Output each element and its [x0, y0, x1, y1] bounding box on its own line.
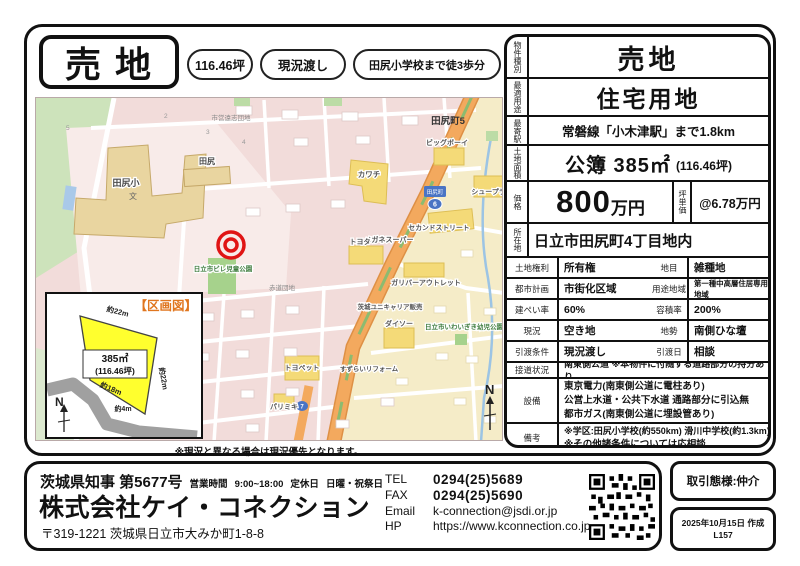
badge-asis: 現況渡し	[260, 49, 346, 80]
second-street-label: セカンドストリート	[408, 224, 469, 232]
table-row: 設備 東京電力(南東側公道に電柱あり) 公営上水道・公共下水道 通路部分に引込無…	[507, 377, 768, 422]
shiei-danchi-label: 市営遠志団地	[212, 113, 252, 122]
town-sign-label: 田尻町	[427, 189, 444, 196]
lot-diagram-title: 【区画図】	[134, 298, 197, 313]
location-value: 日立市田尻町4丁目地内	[529, 224, 768, 256]
lot-diagram-inset: 【区画図】 385㎡ (116.46坪) 約22m 約22m 約18m 約4m …	[45, 292, 203, 439]
lot-dim-top: 約22m	[106, 304, 131, 319]
megane-super-label: メガネスーパー	[365, 235, 414, 244]
table-row: 土地権利 所有権 地目 雑種地	[507, 256, 768, 277]
created-date-box: 2025年10月15日 作成 L157	[670, 507, 776, 551]
badge-school-distance: 田尻小学校まで徒3歩分	[353, 49, 501, 80]
tel-value: 0294(25)5689	[433, 472, 590, 487]
block-number-3: 3	[206, 129, 210, 136]
transaction-type: 取引態様:仲介	[687, 473, 760, 489]
land-area-value: 公簿 385㎡ (116.46坪)	[529, 146, 768, 180]
map-green-patch-1	[234, 98, 250, 106]
kawachi-label: カワチ	[358, 170, 381, 179]
contact-block: TEL 0294(25)5689 FAX 0294(25)5690 Email …	[385, 472, 590, 533]
map-green-patch-2	[324, 98, 342, 106]
row-label: 土地権利	[507, 258, 559, 277]
price-value: 800 万円	[529, 182, 672, 222]
row-label: 地目	[651, 258, 689, 277]
row-label: 建ぺい率	[507, 300, 559, 319]
block-number-4: 4	[242, 139, 246, 146]
tajiri5-district-label: 田尻町5	[431, 116, 466, 127]
city-planning-value: 市街化区域	[559, 279, 651, 298]
remarks-value: ※学区:田尻小学校(約550km) 滑川中学校(約1.3km) ※その他諸条件に…	[559, 424, 768, 448]
table-row: 建ぺい率 60% 容積率 200%	[507, 298, 768, 319]
table-row: 所在地 日立市田尻町4丁目地内	[507, 222, 768, 256]
row-label: 引渡日	[651, 342, 689, 361]
utilities-value: 東京電力(南東側公道に電柱あり) 公営上水道・公共下水道 通路部分に引込無 都市…	[559, 379, 768, 422]
block-number-2: 2	[164, 113, 168, 120]
company-info-panel: 茨城県知事 第5677号 営業時間 9:00~18:00 定休日 日曜・祝祭日 …	[24, 461, 662, 551]
table-row: 現況 空き地 地勢 南側ひな壇	[507, 319, 768, 340]
lot-area-tsubo: (116.46坪)	[95, 366, 135, 376]
row-label: 都市計画	[507, 279, 559, 298]
zoning-value: 第一種中高層住居専用地域	[689, 279, 768, 298]
document-number: L157	[713, 529, 732, 541]
block-number-5: 5	[66, 125, 70, 132]
row-label: 最適用途	[513, 81, 521, 113]
row-label: 容積率	[651, 300, 689, 319]
email-label: Email	[385, 504, 429, 518]
hp-label: HP	[385, 519, 429, 533]
school-mark-icon: 文	[129, 191, 137, 201]
map-north-label: N	[485, 382, 494, 397]
sale-title: 売 地	[65, 36, 153, 88]
map-disclaimer-note: ※現況と異なる場合は現況優先となります。	[35, 444, 503, 458]
row-label: 現況	[507, 321, 559, 340]
map-infant-park	[455, 334, 467, 345]
tsubo-price-value: @6.78万円	[692, 182, 768, 222]
property-type-value: 売地	[529, 37, 768, 77]
map-green-patch-3	[486, 131, 498, 141]
badge-tsubo: 116.46坪	[187, 49, 253, 80]
property-spec-table: 物件種別 売地 最適用途 住宅用地 最寄駅 常磐線「小木津駅」まで1.8km 土…	[504, 34, 771, 448]
floor-ratio-value: 200%	[689, 300, 768, 319]
land-right-value: 所有権	[559, 258, 651, 277]
row-label: 最寄駅	[513, 119, 521, 143]
route-6-number: 6	[433, 202, 437, 209]
table-row: 接道状況 南東側公道 ※本物件に付随する道路部分の持分あり	[507, 361, 768, 377]
daiso-label: ダイソー	[385, 319, 413, 328]
row-label: 地勢	[651, 321, 689, 340]
nearest-station-value: 常磐線「小木津駅」まで1.8km	[529, 117, 768, 144]
tel-label: TEL	[385, 472, 429, 487]
terrain-value: 南側ひな壇	[689, 321, 768, 340]
table-row: 価格 800 万円 坪単価 @6.78万円	[507, 180, 768, 222]
row-label: 価格	[513, 194, 521, 210]
land-category-value: 雑種地	[689, 258, 768, 277]
location-map: 田尻町 6 7 N 田尻小 文 田尻	[35, 97, 503, 441]
bigboy-label: ビッグボーイ	[426, 138, 468, 147]
table-row: 引渡条件 現況渡し 引渡日 相談	[507, 340, 768, 361]
email-value: k-connection@jsdi.or.jp	[433, 504, 590, 518]
handover-date-value: 相談	[689, 342, 768, 361]
row-label: 設備	[507, 379, 559, 422]
row-label: 接道状況	[507, 363, 559, 377]
road-access-value: 南東側公道 ※本物件に付随する道路部分の持分あり	[559, 363, 768, 377]
toyopet-label: トヨペット	[285, 364, 320, 372]
toyota-label: トヨタ	[350, 237, 371, 246]
company-address: 〒319-1221 茨城県日立市大みか町1-8-8	[41, 523, 264, 542]
infant-park-label: 日立市いわいぎき幼児公園	[425, 322, 503, 331]
row-label: 引渡条件	[507, 342, 559, 361]
table-row: 最適用途 住宅用地	[507, 77, 768, 115]
table-row: 土地面積 公簿 385㎡ (116.46坪)	[507, 144, 768, 180]
sale-title-box: 売 地	[39, 35, 179, 89]
qr-code	[589, 474, 655, 540]
flyer-main-panel: 売 地 116.46坪 現況渡し 田尻小学校まで徒3歩分	[24, 24, 776, 456]
children-park-label: 日立市ビレ児童公園	[194, 264, 253, 273]
lot-dim-bottom: 約4m	[114, 404, 131, 413]
fax-value: 0294(25)5690	[433, 488, 590, 503]
handover-condition-value: 現況渡し	[559, 342, 651, 361]
fax-label: FAX	[385, 488, 429, 503]
lot-area-value: 385㎡	[102, 352, 129, 365]
row-label: 備考	[507, 424, 559, 448]
table-row: 最寄駅 常磐線「小木津駅」まで1.8km	[507, 115, 768, 144]
reform-shop-label: すずらいリフォーム	[340, 364, 399, 373]
row-label: 用途地域	[651, 279, 689, 298]
map-children-park	[208, 258, 236, 294]
best-use-value: 住宅用地	[529, 79, 768, 115]
lot-north-label: N	[55, 395, 64, 409]
lot-dim-right: 約22m	[157, 367, 171, 391]
gulliver-label: ガリバーアウトレット	[391, 278, 461, 287]
map-tajiri-building	[183, 166, 230, 186]
row-label: 所在地	[513, 228, 521, 252]
row-label: 物件種別	[513, 41, 521, 73]
coverage-ratio-value: 60%	[559, 300, 651, 319]
created-date: 2025年10月15日 作成	[682, 517, 765, 529]
table-row: 備考 ※学区:田尻小学校(約550km) 滑川中学校(約1.3km) ※その他諸…	[507, 422, 768, 448]
row-label: 坪単価	[678, 190, 686, 214]
sekido-danchi-label: 赤道団地	[269, 283, 296, 292]
row-label: 土地面積	[513, 147, 521, 179]
transaction-type-box: 取引態様:仲介	[670, 461, 776, 501]
company-name: 株式会社ケイ・コネクション	[39, 488, 370, 524]
lot-north-compass: N	[55, 395, 70, 432]
hp-value: https://www.kconnection.co.jp	[433, 519, 590, 533]
lot-diagram-canvas: 【区画図】 385㎡ (116.46坪) 約22m 約22m 約18m 約4m …	[47, 294, 201, 437]
unicarrier-label: 茨城ユニキャリア販売	[358, 302, 424, 311]
table-row: 物件種別 売地	[507, 37, 768, 77]
tajiri-label: 田尻	[199, 157, 215, 166]
current-state-value: 空き地	[559, 321, 651, 340]
school-label: 田尻小	[112, 177, 139, 188]
shoe-plaza-label: シュープラザ	[471, 187, 503, 196]
parimiki-label: パリミキ	[270, 402, 298, 411]
table-row: 都市計画 市街化区域 用途地域 第一種中高層住居専用地域	[507, 277, 768, 298]
